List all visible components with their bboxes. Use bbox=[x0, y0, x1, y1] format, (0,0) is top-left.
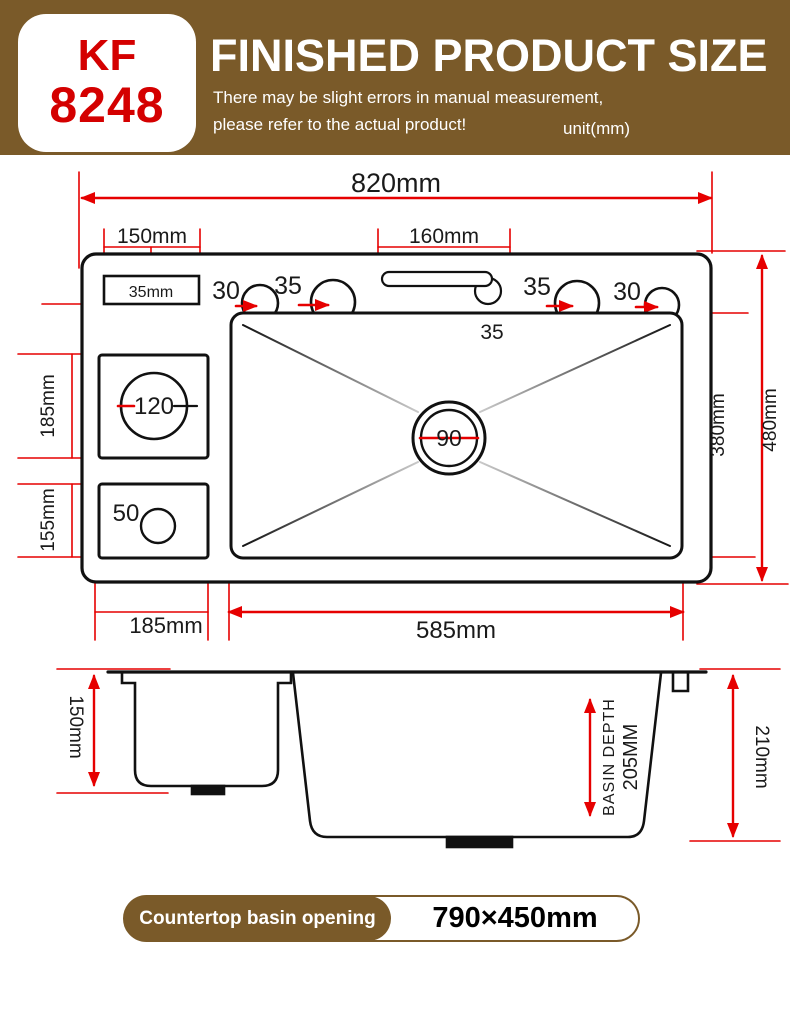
model-code-number: 8248 bbox=[18, 80, 196, 130]
dim-35-right: 35 bbox=[523, 273, 551, 301]
large-basin-drain bbox=[447, 837, 512, 847]
disclaimer-line1: There may be slight errors in manual mea… bbox=[213, 88, 603, 108]
dim-160: 160mm bbox=[409, 225, 479, 248]
dim-820: 820mm bbox=[351, 168, 441, 198]
hole-50 bbox=[141, 509, 175, 543]
badge-label-pill: Countertop basin opening bbox=[124, 896, 391, 941]
side-view-labels: 150mm BASIN DEPTH 205MM 210mm bbox=[65, 695, 772, 816]
small-basin-drain bbox=[192, 786, 224, 794]
model-badge: KF 8248 bbox=[18, 14, 196, 152]
dim-90: 90 bbox=[436, 425, 462, 451]
dim-120: 120 bbox=[134, 393, 174, 420]
unit-note: unit(mm) bbox=[563, 119, 630, 139]
basin-depth-value: 205MM bbox=[620, 724, 642, 791]
right-rim-notch bbox=[673, 672, 688, 691]
side-view: 150mm BASIN DEPTH 205MM 210mm bbox=[57, 669, 780, 847]
dim-585: 585mm bbox=[416, 617, 496, 644]
dim-30-right: 30 bbox=[613, 278, 641, 306]
dim-30-left: 30 bbox=[212, 277, 240, 305]
header-band: KF 8248 FINISHED PRODUCT SIZE There may … bbox=[0, 0, 790, 155]
dim-150-side: 150mm bbox=[65, 695, 86, 758]
product-size-sheet: { "header": { "model_line1": "KF", "mode… bbox=[0, 0, 790, 1010]
dim-150: 150mm bbox=[117, 225, 187, 248]
dim-480: 480mm bbox=[760, 388, 781, 451]
left-accessory-holes bbox=[99, 355, 208, 558]
dim-35-left: 35 bbox=[274, 272, 302, 300]
basin-depth-label: BASIN DEPTH bbox=[601, 698, 618, 816]
dim-35mm-tray: 35mm bbox=[129, 284, 173, 301]
disclaimer-line2: please refer to the actual product! bbox=[213, 115, 466, 135]
dim-35-slot: 35 bbox=[480, 321, 503, 344]
top-view: 820mm 150mm 160mm 35mm 30 35 35 30 35 12… bbox=[18, 168, 788, 644]
dim-185-upper: 185mm bbox=[38, 374, 59, 437]
badge-value: 790×450mm bbox=[391, 897, 639, 940]
dim-210: 210mm bbox=[751, 725, 772, 788]
page-title: FINISHED PRODUCT SIZE bbox=[210, 30, 785, 82]
small-basin-profile bbox=[122, 672, 291, 786]
dim-155: 155mm bbox=[38, 488, 59, 551]
side-red-lines bbox=[57, 669, 780, 841]
badge-label: Countertop basin opening bbox=[139, 908, 375, 930]
model-code-prefix: KF bbox=[18, 32, 196, 80]
dim-50: 50 bbox=[113, 500, 140, 527]
dim-185-bottom: 185mm bbox=[129, 613, 202, 638]
slot-capsule bbox=[382, 272, 492, 286]
dim-380: 380mm bbox=[708, 393, 729, 456]
countertop-opening-badge: Countertop basin opening 790×450mm bbox=[123, 895, 640, 942]
